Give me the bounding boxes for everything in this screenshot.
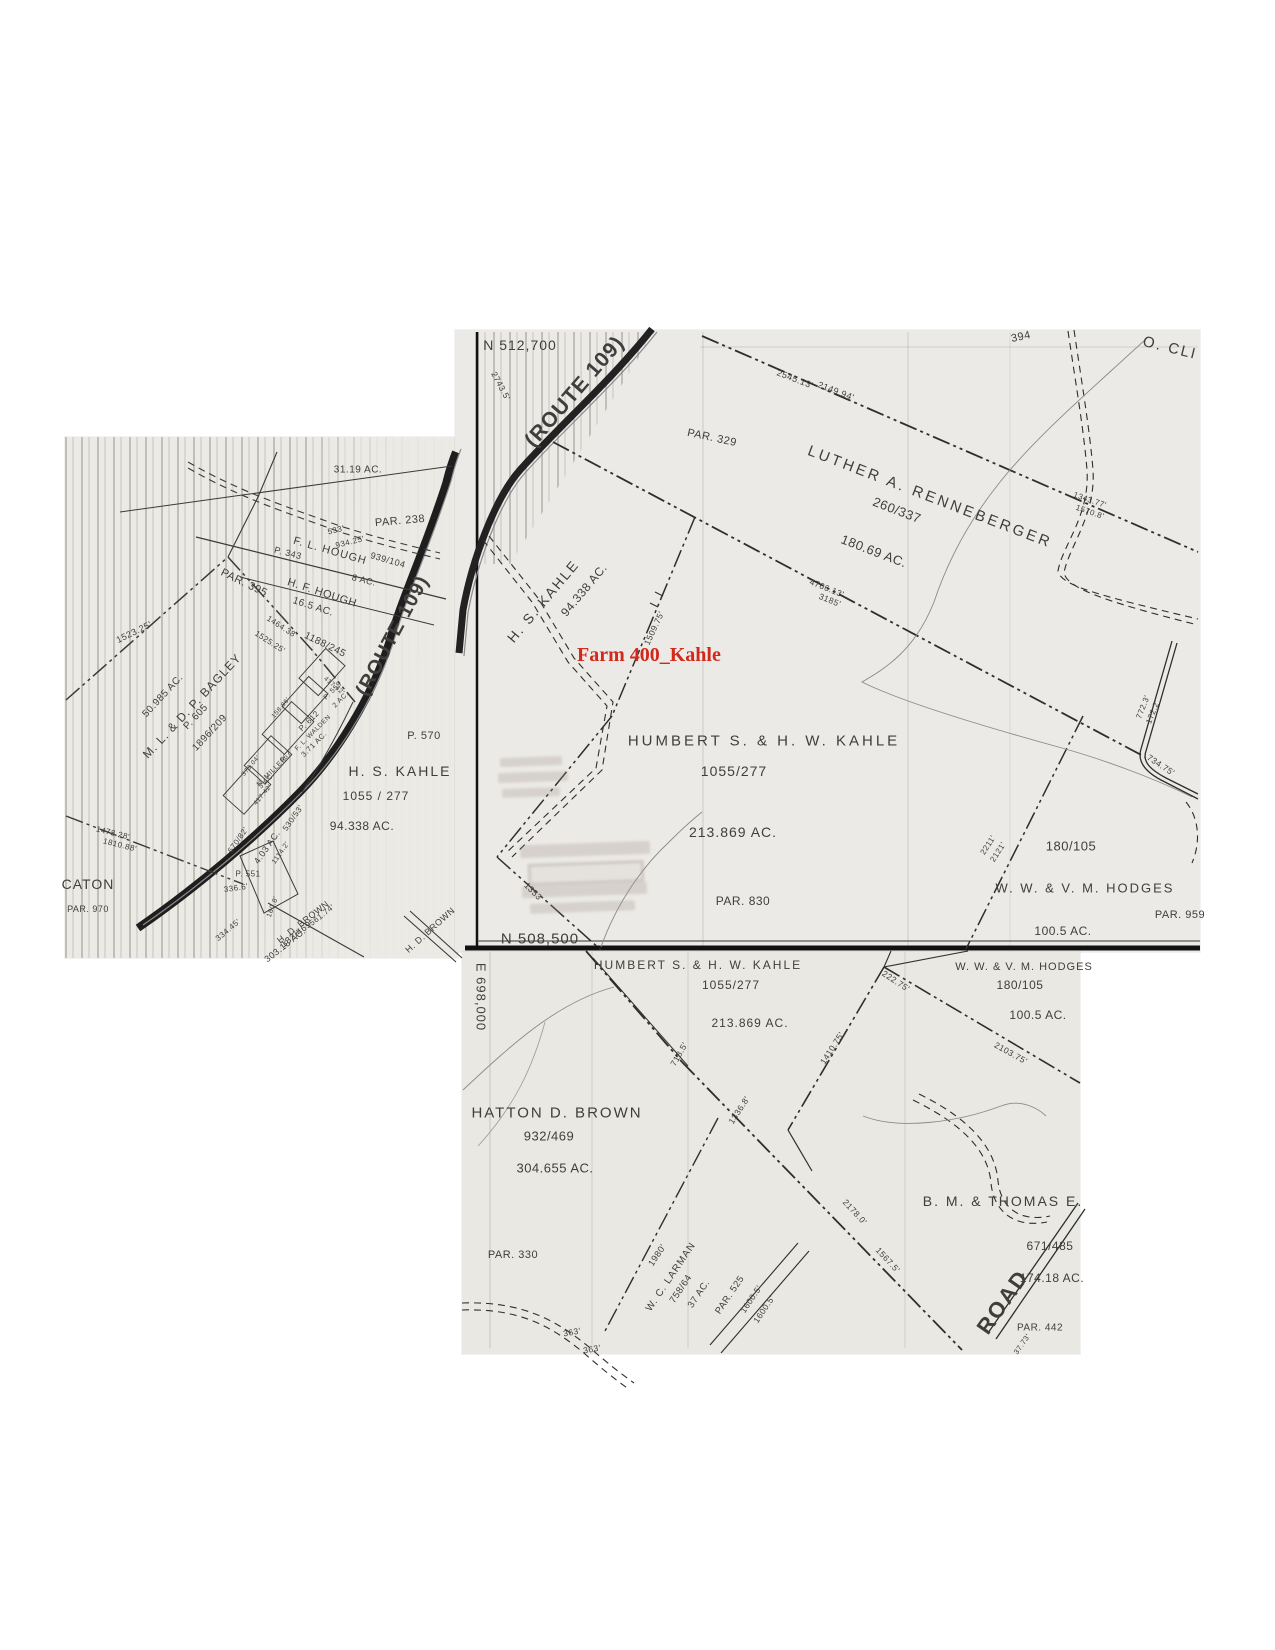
stripe-fade [65,437,458,958]
farm-annotation-label: Farm 400_Kahle [577,644,721,667]
left-map-sheet [65,437,458,958]
tax-map-page: 31.19 AC.PAR. 238533'934.25'F. L. HOUGH9… [0,0,1275,1650]
lower-right-map-sheet [462,952,1080,1354]
